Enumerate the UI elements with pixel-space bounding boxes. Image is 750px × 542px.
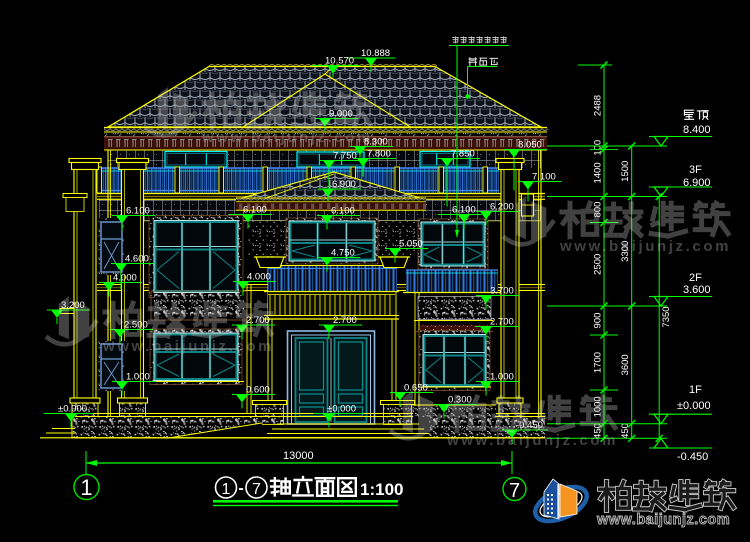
svg-text:0.650: 0.650 [404, 383, 428, 394]
svg-text:2500: 2500 [593, 254, 604, 275]
svg-text:±0.000: ±0.000 [327, 404, 356, 415]
svg-text:1.000: 1.000 [126, 372, 150, 383]
svg-text:www.baijunjz.com: www.baijunjz.com [596, 512, 730, 528]
svg-text:8.400: 8.400 [683, 124, 711, 136]
svg-text:5.050: 5.050 [399, 239, 423, 250]
svg-text:3.700: 3.700 [490, 286, 514, 297]
svg-text:-0.450: -0.450 [677, 451, 708, 463]
svg-text:3F: 3F [689, 164, 702, 176]
svg-text:7350: 7350 [661, 306, 672, 327]
svg-text:7.100: 7.100 [532, 172, 556, 183]
svg-text:7: 7 [509, 480, 520, 502]
svg-text:10.888: 10.888 [361, 48, 390, 59]
svg-text:4.600: 4.600 [125, 254, 149, 265]
svg-text:www.baijunjz.com: www.baijunjz.com [446, 432, 618, 449]
svg-text:1500: 1500 [620, 161, 631, 182]
svg-text:1.000: 1.000 [490, 372, 514, 383]
svg-text:3600: 3600 [620, 354, 631, 375]
svg-text:2F: 2F [689, 272, 702, 284]
svg-text:7.850: 7.850 [451, 149, 475, 160]
svg-text:1400: 1400 [593, 162, 604, 183]
svg-text:6.900: 6.900 [332, 179, 356, 190]
svg-text:1F: 1F [689, 384, 702, 396]
svg-text:6.100: 6.100 [452, 205, 476, 216]
svg-text:www.baijunjz.com: www.baijunjz.com [201, 129, 373, 146]
svg-text:0.600: 0.600 [246, 385, 270, 396]
svg-text:www.baijunjz.com: www.baijunjz.com [559, 238, 731, 255]
svg-text:900: 900 [593, 313, 604, 329]
svg-text:3.600: 3.600 [683, 284, 711, 296]
svg-text:1700: 1700 [593, 352, 604, 373]
svg-text:6.100: 6.100 [243, 205, 267, 216]
svg-text:6.100: 6.100 [126, 206, 150, 217]
svg-text:7.750: 7.750 [333, 151, 357, 162]
svg-text:1:100: 1:100 [360, 480, 403, 499]
svg-text:4.000: 4.000 [247, 272, 271, 283]
svg-text:4.750: 4.750 [331, 248, 355, 259]
svg-text:7.800: 7.800 [367, 149, 391, 160]
svg-text:6.100: 6.100 [331, 206, 355, 217]
svg-text:8.050: 8.050 [518, 140, 542, 151]
svg-text:7: 7 [252, 481, 261, 498]
svg-text:450: 450 [620, 423, 631, 439]
svg-text:±0.000: ±0.000 [58, 404, 87, 415]
svg-text:10.570: 10.570 [325, 56, 354, 67]
svg-text:13000: 13000 [283, 450, 314, 462]
svg-text:2.700: 2.700 [333, 315, 357, 326]
svg-text:1: 1 [80, 475, 92, 500]
svg-text:100: 100 [593, 140, 604, 156]
svg-text:2488: 2488 [593, 95, 604, 116]
svg-text:2.700: 2.700 [490, 317, 514, 328]
svg-text:1: 1 [222, 481, 231, 498]
svg-text:6.200: 6.200 [490, 202, 514, 213]
svg-text:-: - [238, 480, 243, 497]
svg-text:9.000: 9.000 [329, 109, 353, 120]
svg-text:4.000: 4.000 [113, 273, 137, 284]
svg-text:±0.000: ±0.000 [677, 400, 711, 412]
svg-text:www.baijunjz.com: www.baijunjz.com [102, 338, 274, 355]
